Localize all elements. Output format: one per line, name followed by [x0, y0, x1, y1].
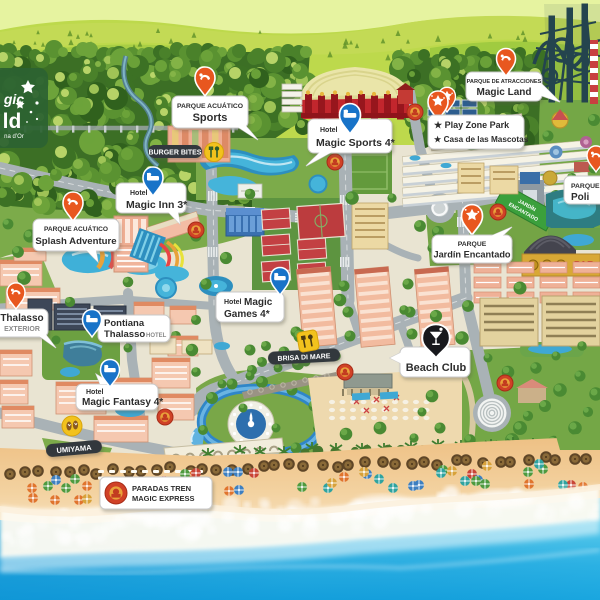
svg-text:MAGIC EXPRESS: MAGIC EXPRESS [132, 494, 195, 503]
svg-text:Magic Land: Magic Land [476, 87, 531, 98]
svg-text:Magic: Magic [244, 297, 273, 308]
svg-text:★ Casa de las Mascotas: ★ Casa de las Mascotas [433, 135, 529, 144]
svg-text:Magic Inn 3*: Magic Inn 3* [126, 199, 188, 211]
svg-text:★ Play Zone Park: ★ Play Zone Park [434, 120, 510, 130]
svg-text:Games 4*: Games 4* [224, 309, 270, 320]
svg-text:Splash Adventure: Splash Adventure [35, 236, 116, 247]
svg-text:Hotel: Hotel [224, 299, 242, 306]
svg-text:ld: ld [3, 110, 22, 133]
svg-text:PARQUE ACUÁTICO: PARQUE ACUÁTICO [177, 101, 243, 110]
svg-text:PARQUE ACUÁTICO: PARQUE ACUÁTICO [44, 224, 108, 233]
svg-text:Magic Sports 4*: Magic Sports 4* [316, 137, 396, 149]
svg-text:PARADAS TREN: PARADAS TREN [132, 484, 191, 493]
svg-text:Hotel: Hotel [130, 190, 148, 197]
svg-text:Thalasso: Thalasso [0, 313, 43, 324]
svg-text:BURGER BITES: BURGER BITES [149, 150, 202, 157]
svg-text:PARQUE: PARQUE [571, 183, 600, 190]
svg-text:Pontiana: Pontiana [104, 318, 145, 329]
svg-text:Beach Club: Beach Club [406, 362, 467, 374]
svg-text:Thalasso: Thalasso [104, 329, 145, 340]
svg-text:EXTERIOR: EXTERIOR [4, 326, 40, 333]
svg-text:Sports: Sports [193, 112, 228, 124]
svg-text:Magic Fantasy 4*: Magic Fantasy 4* [82, 397, 163, 408]
svg-text:HOTEL: HOTEL [146, 333, 167, 339]
svg-text:Hotel: Hotel [320, 127, 338, 134]
svg-text:PARQUE DE ATRACCIONES: PARQUE DE ATRACCIONES [467, 79, 542, 85]
svg-text:Poli: Poli [571, 192, 590, 203]
svg-text:na d’Or: na d’Or [4, 134, 24, 140]
svg-text:Jardín Encantado: Jardín Encantado [433, 250, 510, 260]
svg-text:PARQUE: PARQUE [458, 241, 487, 248]
svg-text:Hotel: Hotel [86, 389, 104, 396]
